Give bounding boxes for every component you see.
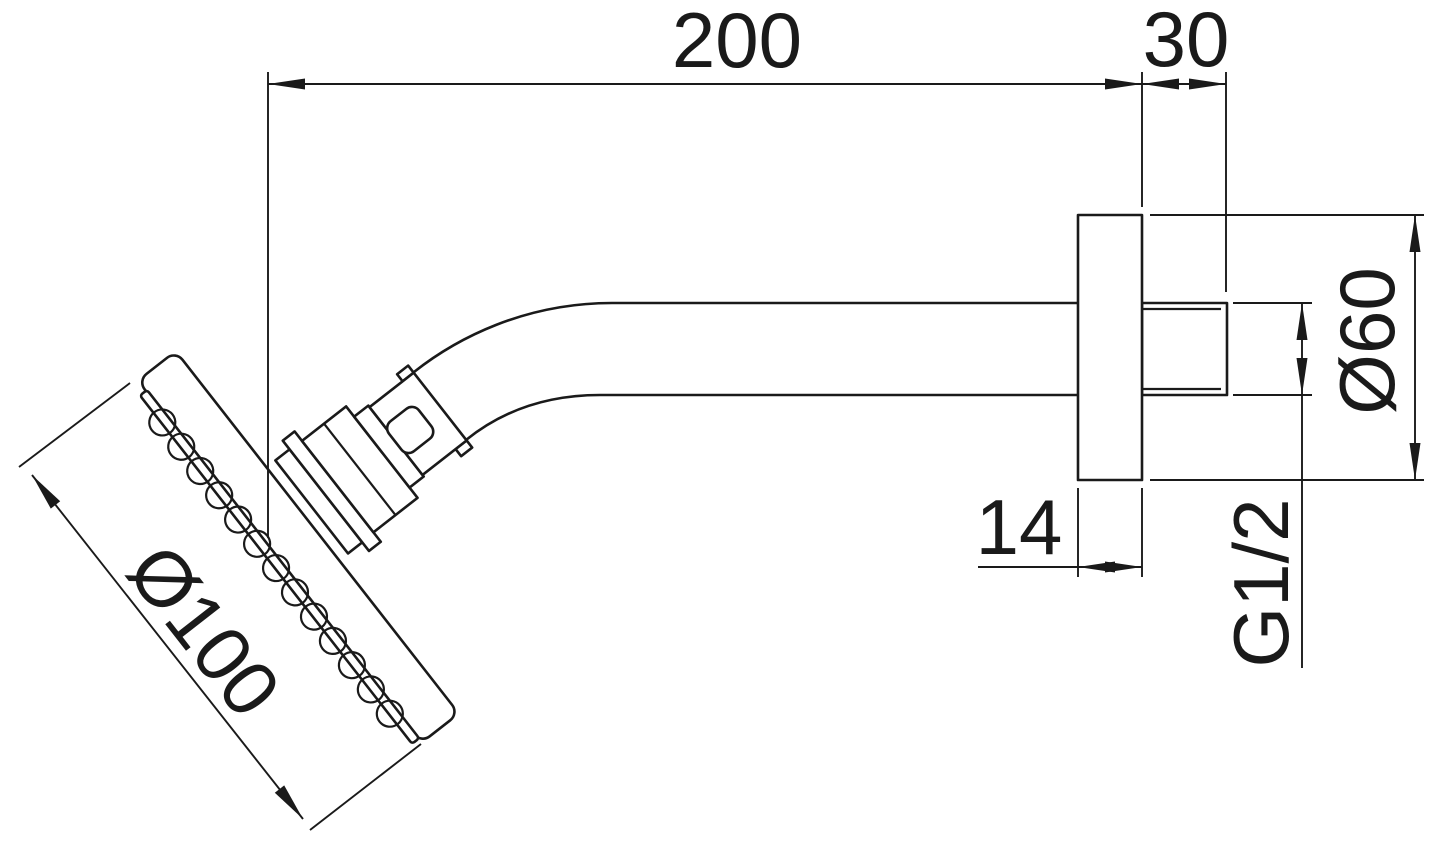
technical-drawing-shower-arm: 200 30 14 Ø60 G1/2 Ø100 [0,0,1445,841]
arm-tube-top-edge [414,303,1079,372]
arrowhead [1105,562,1142,573]
shower-arm [414,303,1079,440]
dim-label-thread-size: G1/2 [1217,498,1305,667]
arm-tube-bottom-edge [466,395,1079,440]
arrowhead [275,785,303,819]
arrowhead [32,475,60,509]
ext-line-100-top [19,383,130,467]
ext-line-100-bottom [310,744,421,830]
arrowhead [1297,303,1308,340]
wall-mount [1078,215,1227,480]
arrowhead [1297,358,1308,395]
dim-label-arm-length: 200 [672,0,802,84]
wall-flange [1078,215,1142,480]
arrowhead [1410,215,1421,252]
arrowhead [1410,443,1421,480]
arrowhead [268,79,305,90]
dim-label-wall-stub: 30 [1143,0,1230,83]
thread-stub [1142,303,1227,395]
arrowhead [1105,79,1142,90]
dim-label-flange-thickness: 14 [976,483,1063,571]
dim-label-flange-diameter: Ø60 [1323,267,1411,414]
